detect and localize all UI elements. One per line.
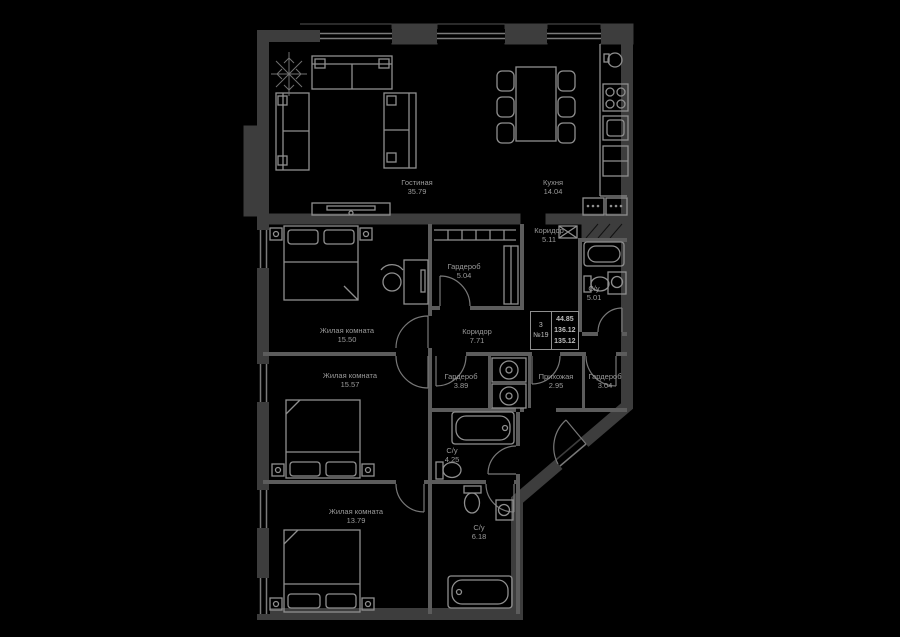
room-name: Гардероб: [448, 262, 481, 271]
room-label-bedroom-2: Жилая комната 15.57: [323, 371, 377, 389]
wall-pier: [505, 24, 547, 44]
room-label-living: Гостиная 35.79: [401, 178, 432, 196]
wall-pilaster: [244, 126, 258, 216]
room-label-wardrobe-3: Гардероб 3.04: [589, 372, 622, 390]
room-area: 7.71: [470, 336, 485, 345]
toilet-icon: [436, 462, 461, 479]
entry-door: [554, 420, 586, 466]
door-arc: [440, 276, 470, 306]
stamp-reduced-total-area: 135.12: [554, 338, 575, 345]
floor-plan: Гостиная 35.79 Кухня 14.04 Коридор 5.11 …: [0, 0, 900, 637]
stamp-right-cell: 44.85 136.12 135.12: [552, 312, 578, 349]
floor-plan-canvas: [0, 0, 900, 637]
room-label-wardrobe-1: Гардероб 5.04: [448, 262, 481, 280]
monitor-icon: [421, 270, 425, 292]
room-name: Коридор: [534, 226, 564, 235]
room-label-corridor-2: Коридор 7.71: [462, 327, 492, 345]
nightstand-icon: [362, 464, 374, 476]
window: [320, 29, 392, 43]
room-name: Коридор: [462, 327, 492, 336]
wall-pier: [601, 24, 633, 44]
wall-pier: [392, 24, 437, 44]
nightstand-icon: [272, 464, 284, 476]
room-name: С/у: [473, 523, 484, 532]
nightstand-icon: [270, 228, 282, 240]
sofa-icon: [276, 93, 309, 170]
room-name: Кухня: [543, 178, 563, 187]
room-label-bathroom-1: С/у 5.01: [587, 284, 602, 302]
chair-icon: [558, 123, 575, 143]
window: [256, 364, 270, 402]
window: [256, 230, 270, 268]
stamp-total-area: 136.12: [554, 327, 575, 334]
bed-icon: [284, 226, 358, 300]
room-label-corridor-1: Коридор 5.11: [534, 226, 564, 244]
apartment-stamp: 3 №19 44.85 136.12 135.12: [530, 311, 579, 350]
room-label-bedroom-3: Жилая комната 13.79: [329, 507, 383, 525]
bed-icon: [284, 530, 360, 612]
nightstand-icon: [360, 228, 372, 240]
window: [256, 578, 270, 614]
door-arc: [396, 316, 428, 348]
chair-icon: [497, 123, 514, 143]
room-name: Жилая комната: [323, 371, 377, 380]
snowflake-decor-icon: [271, 52, 307, 96]
room-area: 3.04: [598, 381, 613, 390]
dryer-icon: [492, 384, 526, 408]
kitchen-cabinet-icon: [583, 198, 627, 215]
bathtub-icon: [448, 576, 512, 608]
chair-icon: [558, 97, 575, 117]
bed-icon: [286, 400, 360, 478]
room-area: 2.95: [549, 381, 564, 390]
window: [437, 29, 505, 43]
room-name: С/у: [446, 446, 457, 455]
room-area: 15.50: [338, 335, 357, 344]
office-chair-icon: [381, 265, 403, 291]
stamp-rooms-count: 3: [539, 322, 543, 329]
interior-walls: [263, 224, 627, 614]
chair-icon: [558, 71, 575, 91]
sink-icon: [604, 53, 622, 67]
room-area: 6.18: [472, 532, 487, 541]
room-label-wardrobe-2: Гардероб 3.89: [445, 372, 478, 390]
dining-table-icon: [516, 67, 556, 141]
room-area: 4.25: [445, 455, 460, 464]
stamp-left-cell: 3 №19: [531, 312, 552, 349]
door-arc: [396, 356, 428, 388]
room-name: Жилая комната: [320, 326, 374, 335]
stamp-living-area: 44.85: [556, 316, 574, 323]
bathtub-icon: [452, 412, 514, 444]
room-label-kitchen: Кухня 14.04: [543, 178, 563, 196]
room-area: 14.04: [544, 187, 563, 196]
room-area: 3.89: [454, 381, 469, 390]
chair-icon: [497, 71, 514, 91]
door-arc: [396, 484, 424, 512]
room-label-hallway: Прихожая 2.95: [539, 372, 574, 390]
room-name: Гардероб: [589, 372, 622, 381]
room-area: 5.01: [587, 293, 602, 302]
tv-console-icon: [312, 203, 390, 215]
room-area: 5.04: [457, 271, 472, 280]
chair-icon: [497, 97, 514, 117]
door-arc: [486, 484, 514, 512]
room-name: Прихожая: [539, 372, 574, 381]
room-name: Жилая комната: [329, 507, 383, 516]
room-area: 5.11: [542, 235, 556, 244]
room-label-bedroom-1: Жилая комната 15.50: [320, 326, 374, 344]
sofa-icon: [312, 56, 392, 89]
room-area: 35.79: [408, 187, 427, 196]
room-label-bathroom-2: С/у 4.25: [445, 446, 460, 464]
bathtub-icon: [584, 242, 624, 266]
window: [547, 29, 601, 43]
window: [256, 490, 270, 528]
room-name: Гардероб: [445, 372, 478, 381]
sofa-icon: [384, 93, 416, 168]
room-name: Гостиная: [401, 178, 432, 187]
room-area: 13.79: [347, 516, 366, 525]
room-label-bathroom-3: С/у 6.18: [472, 523, 487, 541]
room-area: 15.57: [341, 380, 360, 389]
washer-icon: [492, 358, 526, 382]
door-arc: [598, 308, 622, 332]
door-arc: [488, 446, 516, 474]
toilet-icon: [464, 486, 481, 513]
room-name: С/у: [588, 284, 599, 293]
stamp-unit-number: №19: [533, 332, 548, 339]
